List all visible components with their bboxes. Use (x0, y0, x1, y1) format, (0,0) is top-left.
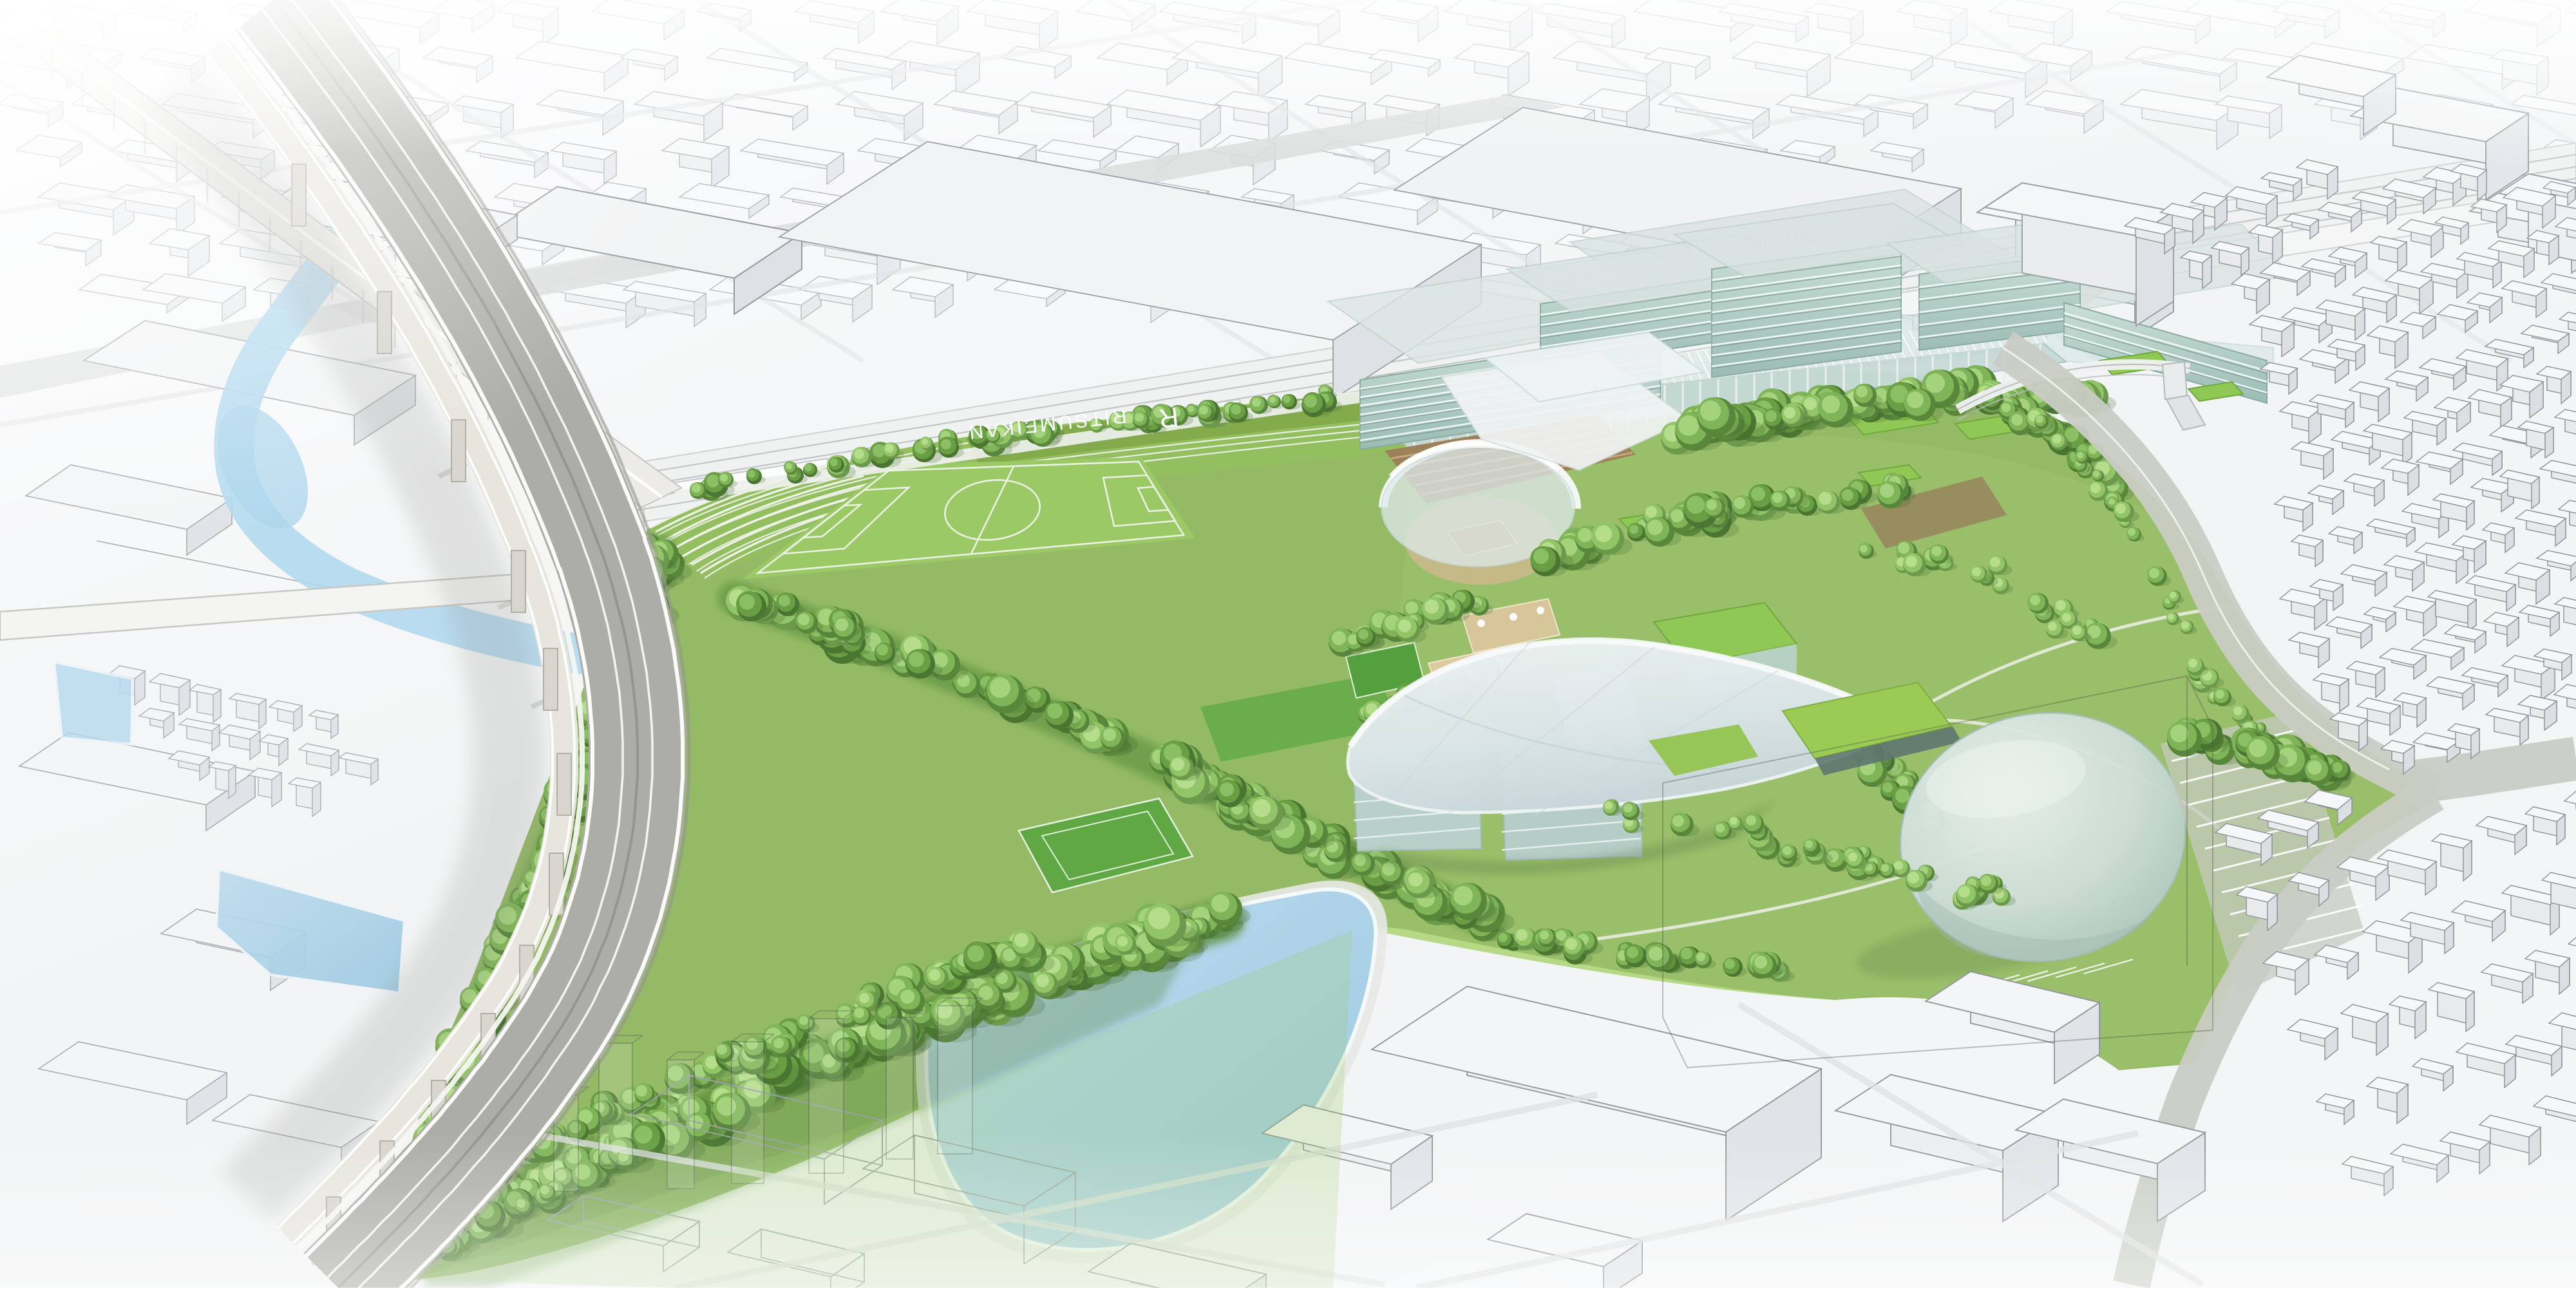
svg-text:R: R (1157, 402, 1180, 434)
